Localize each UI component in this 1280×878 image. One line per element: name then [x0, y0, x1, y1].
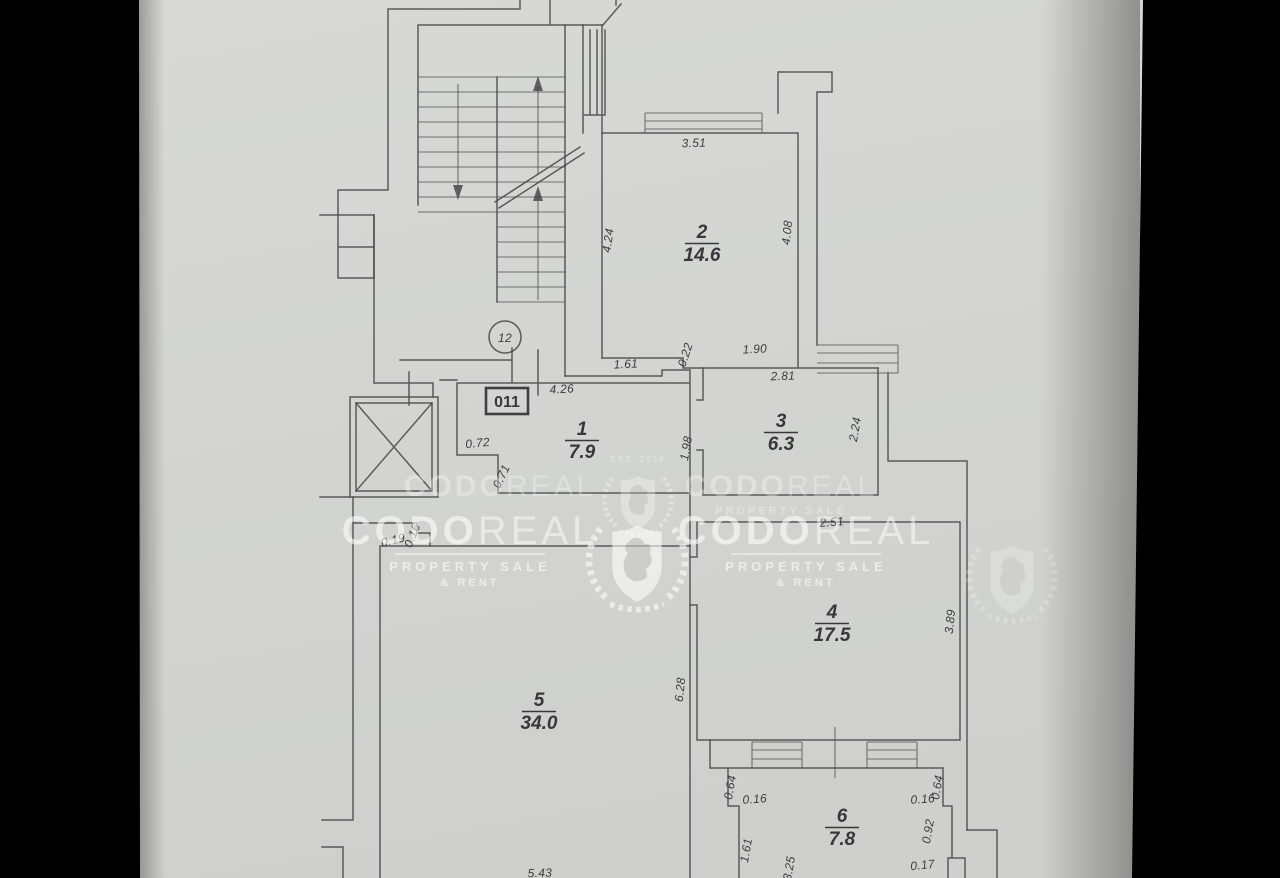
room-number: 1: [577, 419, 588, 440]
room-number: 2: [696, 222, 708, 243]
dimension-label: 4.26: [549, 381, 574, 396]
floor-plan-photo: 12 011 17.9214.636.3417.5534.067.8 3.514…: [0, 0, 1280, 878]
dimension-label: 0.72: [465, 435, 491, 451]
watermark-brand: CODOREAL: [342, 509, 599, 553]
room-area: 34.0: [521, 713, 558, 734]
floor-circle-label: 12: [498, 331, 512, 345]
unit-number-label: 011: [494, 394, 520, 411]
room-area: 17.5: [814, 625, 851, 646]
watermark-tagline: PROPERTY SALE: [389, 559, 551, 574]
dimension-label: 3.51: [681, 136, 706, 151]
floor-plan-canvas: 12 011 17.9214.636.3417.5534.067.8 3.514…: [0, 0, 1280, 878]
room-number: 4: [826, 602, 838, 623]
dimension-label: 0.16: [910, 791, 935, 807]
room-number: 5: [534, 690, 545, 711]
room-area: 7.8: [829, 829, 856, 850]
photo-edge-shadow-right: [1040, 0, 1140, 878]
watermark-brand: CODOREAL: [685, 470, 877, 503]
watermark-brand: CODOREAL: [678, 509, 935, 553]
watermark-brand: CODOREAL: [404, 470, 596, 503]
room-area: 6.3: [768, 434, 795, 455]
paper-sheet: [139, 0, 1143, 878]
watermark-est-label: EST. 2014: [611, 455, 666, 464]
dimension-label: 6.28: [672, 677, 688, 703]
watermark-tagline2: & RENT: [441, 577, 500, 589]
dimension-label: 3.89: [942, 609, 958, 635]
dimension-label: 0.16: [742, 791, 767, 807]
dimension-label: 0.17: [910, 857, 937, 874]
room-area: 14.6: [684, 245, 721, 266]
photo-edge-shadow-left: [139, 0, 165, 878]
dimension-label: 5.43: [527, 866, 552, 878]
dimension-label: 1.61: [613, 356, 638, 371]
dimension-label: 2.81: [769, 369, 795, 384]
watermark-tagline: PROPERTY SALE: [725, 559, 887, 574]
room-number: 3: [776, 411, 787, 432]
dimension-label: 1.90: [742, 341, 767, 356]
watermark-tagline2: & RENT: [777, 577, 836, 589]
room-area: 7.9: [569, 442, 596, 463]
dimension-label: 4.08: [779, 220, 795, 246]
room-number: 6: [837, 806, 848, 827]
